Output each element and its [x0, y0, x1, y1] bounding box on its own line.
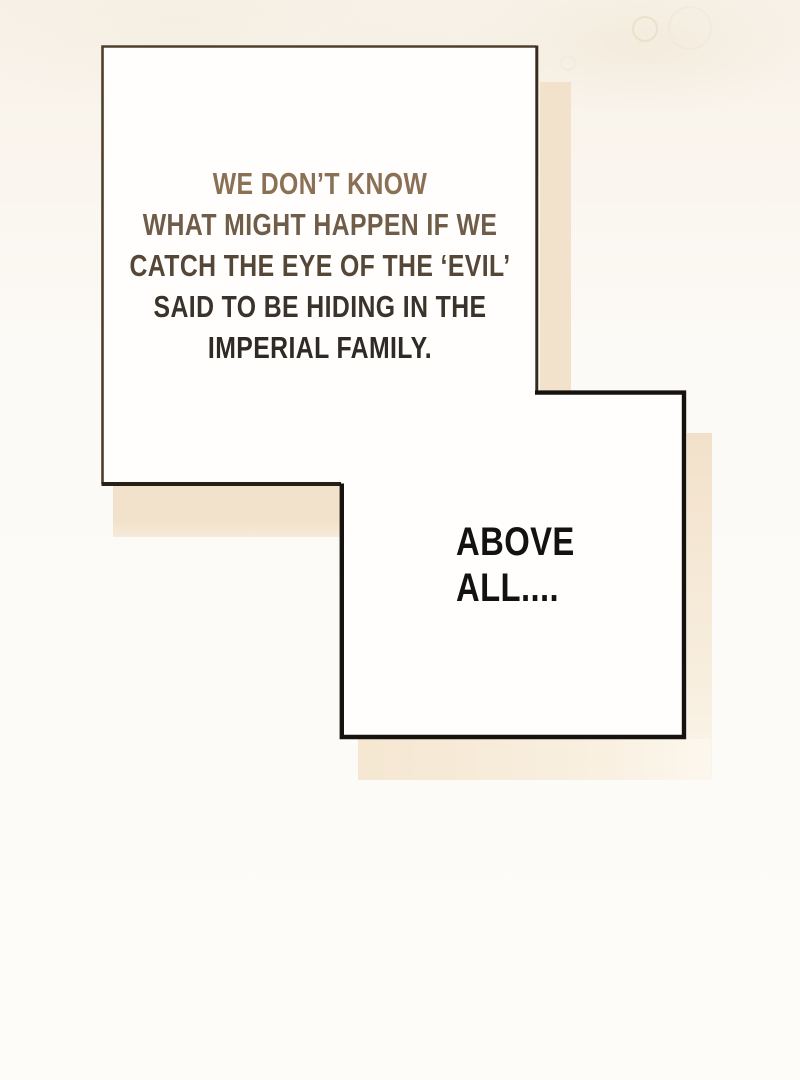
speech-text-line: SAID TO BE HIDING IN THE — [154, 286, 487, 327]
speech-text-line: ABOVE — [456, 519, 575, 565]
speech-text-line: CATCH THE EYE OF THE ‘EVIL’ — [129, 245, 510, 286]
comic-panel-page: WE DON’T KNOW WHAT MIGHT HAPPEN IF WE CA… — [0, 0, 800, 1080]
speech-bubble-1: WE DON’T KNOW WHAT MIGHT HAPPEN IF WE CA… — [146, 46, 495, 484]
speech-text-line: ALL.... — [456, 565, 575, 611]
speech-text-line: WE DON’T KNOW — [213, 163, 428, 204]
speech-text-line: WHAT MIGHT HAPPEN IF WE — [143, 204, 498, 245]
speech-bubble-2: ABOVE ALL.... — [456, 519, 575, 611]
speech-text-line: IMPERIAL FAMILY. — [208, 327, 432, 368]
